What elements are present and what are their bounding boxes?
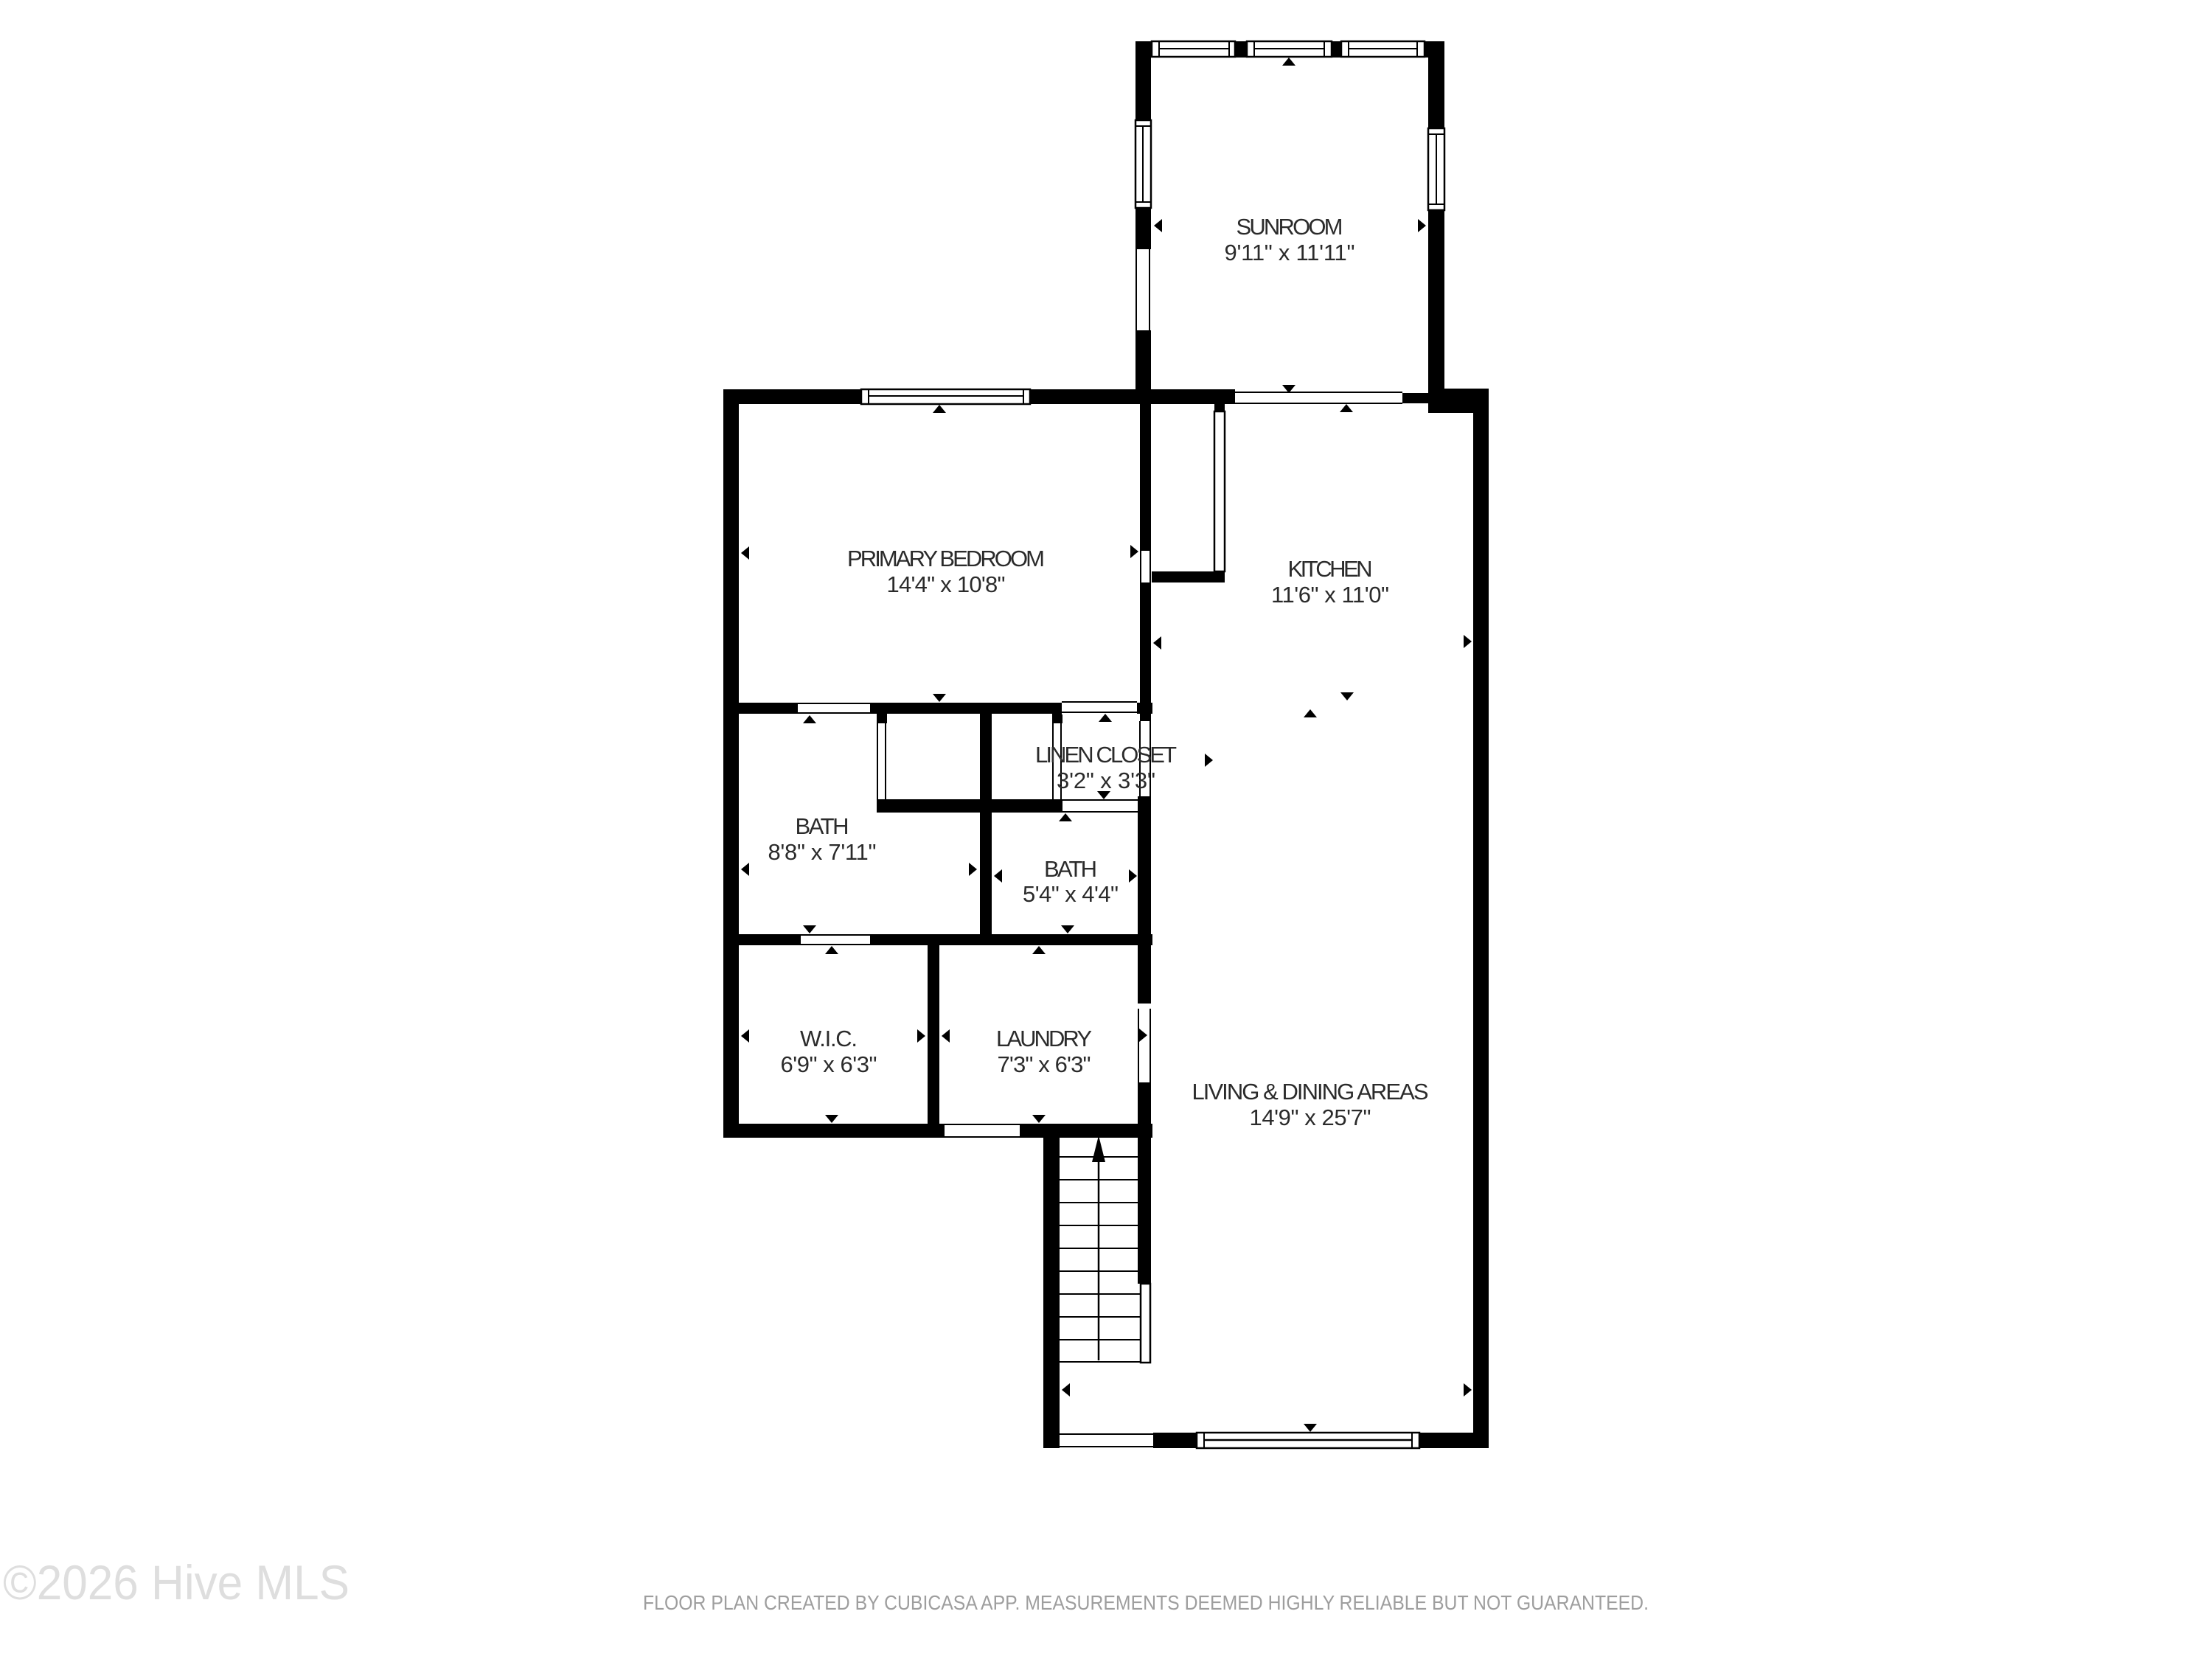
svg-text:FLOOR PLAN CREATED BY CUBICASA: FLOOR PLAN CREATED BY CUBICASA APP. MEAS… — [643, 1591, 1649, 1614]
svg-text:BATH: BATH — [1044, 856, 1097, 882]
svg-text:9'11" x 11'11": 9'11" x 11'11" — [1225, 240, 1355, 265]
svg-text:8'8" x 7'11": 8'8" x 7'11" — [768, 839, 877, 865]
svg-text:KITCHEN: KITCHEN — [1288, 556, 1373, 582]
svg-text:7'3" x 6'3": 7'3" x 6'3" — [998, 1051, 1091, 1077]
svg-text:11'6" x 11'0": 11'6" x 11'0" — [1271, 582, 1389, 608]
svg-text:5'4" x 4'4": 5'4" x 4'4" — [1023, 881, 1119, 907]
svg-text:PRIMARY BEDROOM: PRIMARY BEDROOM — [847, 546, 1045, 571]
svg-text:SUNROOM: SUNROOM — [1237, 214, 1343, 240]
svg-text:6'9" x 6'3": 6'9" x 6'3" — [781, 1051, 877, 1077]
svg-text:W.I.C.: W.I.C. — [800, 1026, 858, 1051]
svg-text:LIVING & DINING AREAS: LIVING & DINING AREAS — [1192, 1079, 1429, 1105]
svg-text:LINEN CLOSET: LINEN CLOSET — [1035, 742, 1177, 768]
svg-text:LAUNDRY: LAUNDRY — [996, 1026, 1092, 1051]
svg-text:14'9" x 25'7": 14'9" x 25'7" — [1250, 1105, 1371, 1130]
svg-text:14'4" x 10'8": 14'4" x 10'8" — [887, 571, 1006, 597]
svg-text:©2026 Hive MLS: ©2026 Hive MLS — [3, 1555, 349, 1610]
svg-text:BATH: BATH — [796, 813, 849, 839]
svg-text:3'2" x 3'3": 3'2" x 3'3" — [1057, 768, 1155, 793]
